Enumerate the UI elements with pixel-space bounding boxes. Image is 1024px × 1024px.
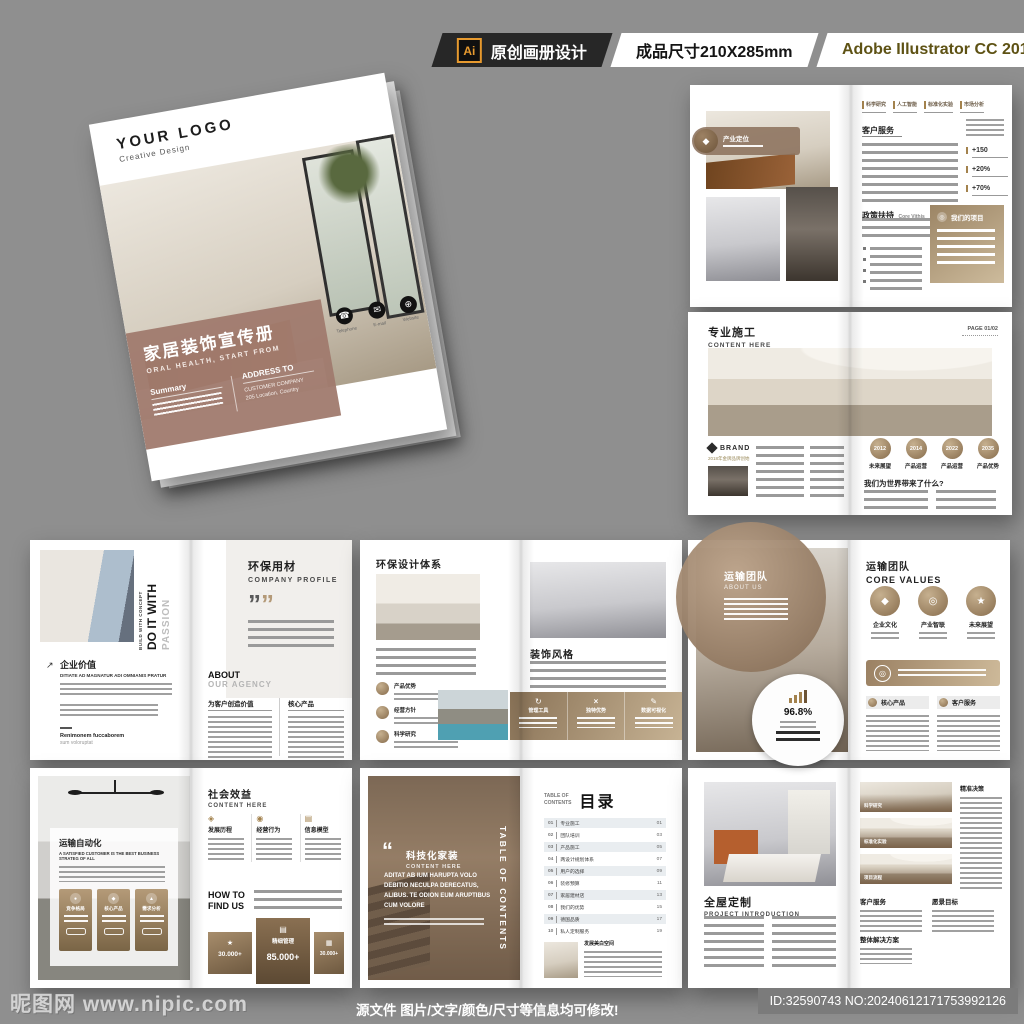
industry-badge: ◆ 产业定位 [692, 127, 800, 155]
text-placeholder [967, 632, 995, 639]
milestone-year: 2022 [942, 438, 963, 459]
text-placeholder [64, 915, 88, 925]
decorative: 07 [548, 893, 553, 898]
text-placeholder [960, 797, 1002, 891]
card-label: 核心产品 [97, 906, 130, 912]
decorative: 专业施工 [556, 820, 656, 827]
quote-icon: “ [382, 838, 393, 864]
photo-interior-2: 标准化实验 [860, 818, 952, 848]
decorative: 团队培训 [556, 832, 656, 839]
decorative: HOW TO FIND US [208, 890, 245, 913]
photo-staircase [786, 187, 838, 281]
text-placeholder [384, 918, 484, 928]
tab-market: 市场分析 [960, 101, 984, 113]
decorative: 05 [657, 845, 662, 850]
text-placeholder [584, 951, 662, 977]
nipic-watermark: 昵图网 www.nipic.com [10, 988, 248, 1018]
stat-value: +70% [966, 185, 1008, 192]
decorative: 用户的选择 [556, 868, 656, 875]
decorative: 为客户创造价值 [208, 698, 272, 760]
page-title: 运输团队 [866, 558, 941, 573]
band-label: 数据可视化 [625, 707, 682, 714]
about-subheading: OUR AGENCY [208, 680, 272, 689]
value-label: 产业智联 [912, 620, 954, 629]
columns-row: ◈ 发展历程 ◉ 经营行为 ▤ 信息模型 [208, 814, 344, 862]
card-label: 需求分析 [135, 906, 168, 912]
divider [231, 376, 238, 412]
column-label: 信息模型 [305, 825, 344, 834]
stat-value: 30.000+ [208, 951, 252, 958]
toc-row: 08我们的优势15 [544, 902, 666, 912]
brochure-cover: YOUR LOGO Creative Design 家居装饰宣传册 ORAL H… [89, 73, 447, 482]
feature-card: ● 竞争格局 [59, 889, 92, 951]
decorative: 08 [548, 905, 553, 910]
signature-sub: sum voloruptat [60, 740, 178, 746]
photo-kitchen-white [376, 574, 480, 640]
signature-name: Renimonem fuccaborem [60, 733, 178, 739]
value-label: 企业文化 [864, 620, 906, 629]
toc-label: CONTENTS [544, 800, 572, 808]
slogan-small: BUILD WITH CONCEPT [138, 548, 143, 650]
tab-research: 科学研究 [862, 101, 886, 113]
page-number: PAGE 01/02 [962, 326, 998, 332]
our-projects-box: ◎ 我们的项目 [930, 205, 1004, 283]
text-placeholder [530, 661, 666, 688]
document-icon: ▤ [256, 925, 310, 934]
values-row: ◆ 企业文化 ◎ 产业智联 ★ 未来展望 [864, 586, 1002, 639]
curtain-decor [788, 790, 830, 854]
decorative: 德国品质 [556, 916, 656, 923]
howto-line: FIND US [208, 901, 245, 912]
decorative: 03 [548, 845, 553, 850]
toc-row: 02团队培训03 [544, 830, 666, 840]
network-icon: ◎ [918, 586, 948, 616]
section-heading: 整体解决方案 [860, 934, 912, 944]
spread-company-profile: BUILD WITH CONCEPT DO IT WITH PASSION ↗ … [30, 540, 352, 760]
decorative: ✎ 数据可视化 [625, 692, 682, 740]
tab-ai: 人工智能 [893, 101, 917, 113]
section-subheading: DITIATE AD MAGNATUR ADI OMNIANIS PRATUR [60, 673, 178, 678]
chandelier-decor [68, 790, 82, 795]
decorative: 整体解决方案 [860, 934, 912, 964]
decorative: ◎ 产业智联 [912, 586, 954, 639]
strip-label: 标准化实验 [864, 839, 887, 845]
brand-subtitle: 2018年金牌品牌创始 [708, 456, 750, 462]
decorative: 19 [657, 929, 662, 934]
decorative: PAGE 01/02 [962, 326, 998, 336]
section-label: 核心产品 [881, 698, 905, 707]
stat-value: 30.000+ [314, 951, 344, 957]
decorative: ADDRESS TO CUSTOMER COMPANY 205 Location… [241, 360, 317, 402]
decorative: TABLE OF CONTENTS [544, 793, 572, 808]
card-button [142, 928, 162, 935]
text-placeholder [937, 715, 1000, 751]
target-icon: ◎ [874, 665, 891, 682]
text-placeholder [519, 717, 557, 728]
milestone-label: 产品运营 [936, 462, 968, 470]
badge-icon: ◆ [694, 129, 718, 153]
section-header: 核心产品 [866, 696, 929, 709]
brochure-cover-mockup: YOUR LOGO Creative Design 家居装饰宣传册 ORAL H… [89, 73, 447, 482]
top-info-bar: Ai 原创画册设计 成品尺寸210X285mm Adobe Illustrato… [437, 33, 1024, 67]
decorative: 07 [657, 857, 662, 862]
divider [279, 698, 280, 756]
toc-row: 09德国品质17 [544, 914, 666, 924]
photo-office [530, 562, 666, 638]
card-icon: ◆ [108, 893, 119, 904]
about-circle-overlay: 运输团队 ABOUT US [676, 522, 826, 672]
page-title: 专业施工 [708, 324, 771, 340]
arrow-icon: ↗ [46, 660, 54, 671]
pencil-icon: ✎ [625, 697, 682, 706]
milestone-label: 产品运营 [900, 462, 932, 470]
decorative: 社会效益 CONTENT HERE [208, 786, 267, 809]
adobe-illustrator-icon: Ai [457, 38, 482, 63]
footer-notice: 源文件 图片/文字/颜色/尺寸等信息均可修改! [356, 999, 619, 1019]
page-subtitle: CORE VALUES [866, 575, 941, 585]
spread-professional-construction: 专业施工 CONTENT HERE PAGE 01/02 BRAND 2018年… [688, 312, 1012, 515]
future-icon: ★ [966, 586, 996, 616]
feature-card: ◆ 核心产品 [97, 889, 130, 951]
photo-product-dark [708, 466, 748, 496]
decorative: ◉ 经营行为 [252, 814, 300, 862]
feature-label: 产品优势 [394, 682, 458, 690]
section-heading: 企业价值 [60, 658, 178, 671]
chandelier-decor [74, 792, 158, 794]
feature-band: ↻ 管理工具 × 独特优势 ✎ 数据可视化 [510, 692, 682, 740]
bullet-dots [863, 247, 866, 291]
text-placeholder [577, 717, 615, 728]
photo-interior-3: 项目流程 [860, 854, 952, 884]
milestone-year: 2012 [870, 438, 891, 459]
divider [60, 727, 72, 729]
text-placeholder [59, 866, 165, 882]
spread-design-system: 环保设计体系 产品优势 经营方针 科学研究 装饰风格 ↻ 管理工具 × [360, 540, 682, 760]
text-placeholder [866, 715, 929, 751]
decorative [960, 101, 962, 109]
text-placeholder [780, 721, 816, 728]
decorative: Ai 原创画册设计 [457, 38, 587, 63]
toc-row: 05用户的选择09 [544, 866, 666, 876]
stat-value: +150 [966, 147, 1008, 154]
text-placeholder [776, 731, 820, 741]
section-heading: 愿景目标 [932, 896, 994, 906]
decorative: 我们的优势 [556, 904, 656, 911]
decorative: TABLE OF CONTENTS 目录 [544, 788, 616, 812]
text-placeholder [862, 143, 958, 202]
divider [962, 335, 998, 336]
quote-icon: ” [261, 589, 274, 619]
photo-villa-pool [438, 690, 508, 740]
decorative: 科学研究 [866, 101, 886, 108]
tree-decor [313, 139, 386, 207]
text-placeholder [898, 669, 986, 678]
decorative [376, 730, 389, 743]
decorative: ↻ 管理工具 [510, 692, 568, 740]
text-placeholder [860, 910, 922, 932]
text-placeholder [102, 915, 126, 925]
card-icon: ● [70, 893, 81, 904]
decorative: 私人定制服务 [556, 928, 656, 935]
decorative: 发展美白空间 [584, 940, 662, 977]
stat-box-right: ▦ 30.000+ [314, 932, 344, 974]
feature-card: ▲ 需求分析 [135, 889, 168, 951]
text-placeholder [936, 490, 996, 509]
decorative: 13 [657, 893, 662, 898]
decorative: 15 [657, 905, 662, 910]
quote-subtitle: CONTENT HERE [406, 864, 461, 870]
page-subtitle: CONTENT HERE [208, 803, 267, 809]
wood-island-decor [706, 153, 795, 189]
chandelier-decor [150, 790, 164, 795]
footer-id-badge: ID:32590743 NO:20240612171753992126 [758, 988, 1018, 1014]
stat-label: 精细管理 [256, 937, 310, 945]
strip-label: 项目流程 [864, 875, 882, 881]
text-placeholder [140, 915, 164, 925]
decorative: ◎ 我们的项目 [937, 212, 997, 222]
vertical-contents-label: TABLE OF CONTENTS [498, 826, 508, 951]
stat-value: 85.000+ [256, 952, 310, 962]
decorative: 科技化家装 CONTENT HERE [406, 848, 461, 870]
spread-industry-positioning: ◆ 产业定位 科学研究 人工智能 标准化实验 市场分析 客户服务 +150 +2… [690, 85, 1012, 307]
recycle-icon: ↻ [510, 697, 567, 706]
decorative: 市场分析 [964, 101, 984, 108]
tools-icon: × [568, 697, 625, 706]
stock-preview-image: Ai 原创画册设计 成品尺寸210X285mm Adobe Illustrato… [0, 0, 1024, 1024]
decorative: 03 [657, 833, 662, 838]
stat-box-center: ▤ 精细管理 85.000+ [256, 918, 310, 984]
badge-label: 产业定位 [723, 133, 763, 143]
text-placeholder [810, 446, 844, 500]
milestone-year: 2035 [978, 438, 999, 459]
decorative [804, 690, 807, 703]
decorative: 2022产品运营 [936, 438, 968, 470]
decorative: 04 [548, 857, 553, 862]
photo-bedroom-orange [704, 782, 836, 886]
stats-column: +150 +20% +70% [966, 147, 1008, 204]
decorative: Adobe Illustrator CC 2018 [842, 41, 1024, 59]
column-heading: 精准决策 [960, 784, 1002, 793]
decorative: 2014产品运营 [900, 438, 932, 470]
decorative [939, 698, 948, 707]
decorative: 产业定位 [723, 133, 763, 149]
text-placeholder [256, 838, 292, 862]
decorative [789, 698, 792, 703]
text-placeholder [208, 716, 272, 760]
vertical-slogan: BUILD WITH CONCEPT DO IT WITH PASSION [138, 548, 172, 650]
decorative: 09 [657, 869, 662, 874]
decorative [794, 695, 797, 703]
decorative: 客户服务 [860, 896, 922, 932]
decorative: 核心产品 [288, 698, 344, 760]
photo-living-room [706, 197, 780, 281]
decorative: ◆ 企业文化 [864, 586, 906, 639]
topbar-size-label: 成品尺寸210X285mm [636, 38, 793, 62]
column-label: 经营行为 [256, 825, 295, 834]
monitor-icon: ▦ [314, 939, 344, 947]
decorative: ABOUT OUR AGENCY [208, 670, 272, 689]
decorative: 专业施工 CONTENT HERE [708, 324, 771, 349]
tab-standard: 标准化实验 [924, 101, 953, 113]
text-placeholder [305, 838, 341, 862]
card-button [66, 928, 86, 935]
card-icon: ▲ [146, 893, 157, 904]
diamond-icon [706, 442, 717, 453]
text-placeholder [248, 620, 334, 647]
decorative: ✉E-mail [367, 300, 388, 328]
text-placeholder [376, 648, 476, 675]
decorative: 装修预算 [556, 880, 657, 887]
decorative: 全屋定制 PROJECT INTRODUCTION [704, 894, 800, 918]
section-label: 客户服务 [952, 698, 976, 707]
toc-row: 06装修预算11 [544, 878, 666, 888]
text-placeholder [860, 948, 912, 964]
photo-panorama-lobby [708, 348, 992, 436]
bed-decor [723, 854, 821, 882]
decorative: 愿景目标 [932, 896, 994, 932]
conduct-icon: ◉ [256, 814, 295, 823]
target-banner: ◎ [866, 660, 1000, 686]
caption-title: 发展美白空间 [584, 940, 662, 947]
page-title: 全屋定制 [704, 894, 800, 910]
divider [862, 136, 902, 137]
toc-row: 04两设计规划体系07 [544, 854, 666, 864]
overlay-title: 运输团队 [724, 568, 826, 583]
decorative [376, 706, 389, 719]
decorative: 11 [657, 881, 662, 886]
decorative [868, 698, 877, 707]
decorative: 成品尺寸210X285mm [636, 38, 793, 62]
spread-whole-house-custom: 全屋定制 PROJECT INTRODUCTION 科学研究 标准化实验 项目流… [688, 768, 1010, 988]
decorative [972, 176, 1008, 177]
page-title: 环保用材 [248, 558, 338, 574]
brand-name: BRAND [720, 445, 750, 452]
decorative: ◈ 发展历程 [208, 814, 252, 862]
quote-title: 科技化家装 [406, 848, 461, 862]
website-icon: ⊕ [399, 295, 419, 315]
decorative [924, 101, 926, 109]
decorative: YOUR LOGO Creative Design [115, 116, 237, 164]
topbar-software-label: Adobe Illustrator CC 2018 [842, 41, 1024, 59]
hourglass-icon: ★ [208, 939, 252, 947]
section-heading: 装饰风格 [530, 646, 574, 661]
topbar-segment-design: Ai 原创画册设计 [431, 33, 612, 67]
panel-subtitle: A SATISFIED CUSTOMER IS THE BEST BUSINES… [59, 851, 161, 861]
decorative: 环保用材 COMPANY PROFILE ”” [248, 558, 338, 647]
decorative: ● 竞争格局 ◆ 核心产品 ▲ 需求分析 [59, 889, 169, 951]
spread-social-benefit: 运输自动化 A SATISFIED CUSTOMER IS THE BEST B… [30, 768, 352, 988]
text-placeholder [723, 145, 763, 149]
decorative: × 独特优势 [568, 692, 626, 740]
photo-closet: 科学研究 [860, 782, 952, 812]
text-placeholder [288, 716, 344, 760]
milestone-label: 未来展望 [864, 462, 896, 470]
decorative [893, 101, 895, 109]
page-title: 社会效益 [208, 786, 267, 801]
toc-row: 07家居建材店13 [544, 890, 666, 900]
decorative: 09 [548, 917, 553, 922]
text-placeholder [932, 910, 994, 932]
decorative: 01 [657, 821, 662, 826]
decorative: ★ 未来展望 [960, 586, 1002, 639]
spread-core-values: 运输团队 ABOUT US 96.8% 运输团队 CORE VALUES ◆ 企… [688, 540, 1010, 760]
text-placeholder [724, 598, 788, 620]
box-icon: ◎ [937, 212, 947, 222]
howto-line: HOW TO [208, 890, 245, 901]
section-heading: 客户服务 [860, 896, 922, 906]
box-title: 我们的项目 [951, 212, 984, 222]
page-title: 环保设计体系 [376, 556, 442, 571]
percent-value: 96.8% [752, 707, 844, 718]
decorative: 两设计规划体系 [556, 856, 656, 863]
milestone-label: 产品优势 [972, 462, 1004, 470]
spread-table-of-contents: “ 科技化家装 CONTENT HERE ADITAT AB IUM HARUP… [360, 768, 682, 988]
stat-box-left: ★ 30.000+ [208, 932, 252, 974]
decorative: 06 [548, 881, 553, 886]
decorative: 企业价值 DITIATE AD MAGNATUR ADI OMNIANIS PR… [60, 658, 178, 746]
stat-value: +20% [966, 166, 1008, 173]
topbar-segment-size: 成品尺寸210X285mm [610, 33, 818, 67]
slogan-big: DO IT WITH [145, 548, 159, 650]
decorative: 02 [548, 833, 553, 838]
quote-icon: ” [248, 589, 261, 619]
text-placeholder [254, 890, 342, 910]
decorative: 10 [548, 929, 553, 934]
band-label: 管理工具 [510, 707, 567, 714]
text-placeholder [756, 446, 804, 500]
decorative: 01 [548, 821, 553, 826]
quote-paragraph: ADITAT AB IUM HARUPTA VOLO DEBITIO NECUL… [384, 872, 496, 912]
decorative: 产品施工 [556, 844, 656, 851]
decorative: 2012未来展望 [864, 438, 896, 470]
decorative [862, 101, 864, 109]
frosted-panel: 运输自动化 A SATISFIED CUSTOMER IS THE BEST B… [50, 828, 178, 966]
decorative [972, 195, 1008, 196]
culture-icon: ◆ [870, 586, 900, 616]
card-label: 竞争格局 [59, 906, 92, 912]
decorative: 标准化实验 [928, 101, 953, 108]
photo-hallway [544, 942, 578, 978]
column-label: 发展历程 [208, 825, 247, 834]
text-placeholder [772, 916, 836, 970]
brand-logo: BRAND [708, 444, 750, 452]
bar-chart-icon [752, 690, 844, 703]
milestone-year: 2014 [906, 438, 927, 459]
decorative: 人工智能 [897, 101, 917, 108]
milestone-row: 2012未来展望 2014产品运营 2022产品运营 2035产品优势 [864, 438, 1004, 470]
page-subtitle: COMPANY PROFILE [248, 577, 338, 584]
decorative: ☎Telephone [333, 306, 358, 334]
text-placeholder [937, 229, 995, 269]
decorative: 2035产品优势 [972, 438, 1004, 470]
toc-label: TABLE OF [544, 793, 572, 801]
section-heading: 客户服务 [862, 125, 894, 136]
column-heading: 为客户创造价值 [208, 698, 272, 711]
decorative [376, 682, 389, 695]
tab-row: 科学研究 人工智能 标准化实验 市场分析 [862, 101, 1004, 113]
toc-row: 03产品施工05 [544, 842, 666, 852]
text-placeholder [60, 704, 158, 719]
topbar-segment-software: Adobe Illustrator CC 2018 [816, 33, 1024, 67]
card-button [104, 928, 124, 935]
overlay-subtitle: ABOUT US [724, 585, 826, 591]
text-placeholder [966, 119, 1004, 139]
telephone-icon: ☎ [334, 306, 354, 326]
email-icon: ✉ [367, 300, 387, 320]
topbar-design-label: 原创画册设计 [491, 38, 587, 62]
value-label: 未来展望 [960, 620, 1002, 629]
column-heading: 核心产品 [288, 698, 344, 711]
